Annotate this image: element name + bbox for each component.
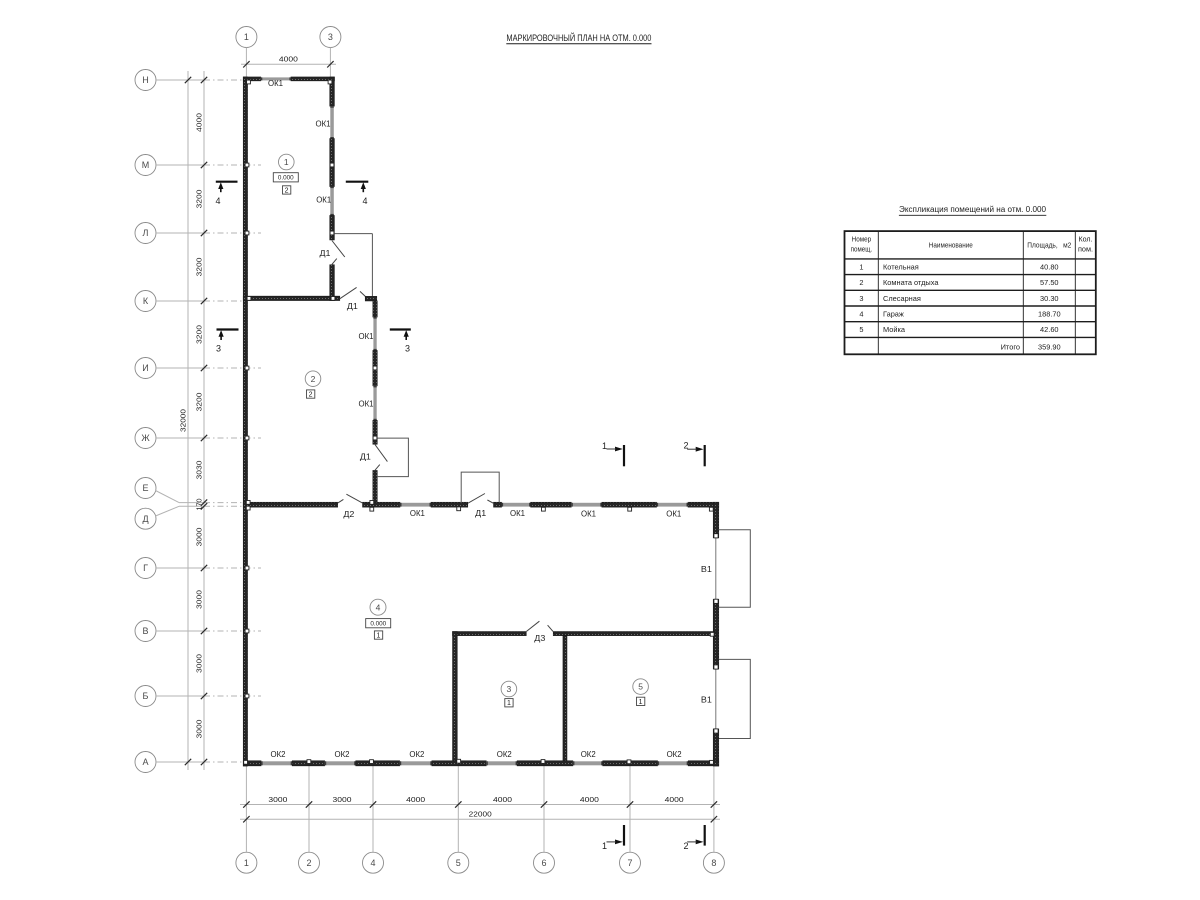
svg-text:ОК1: ОК1 xyxy=(666,510,682,519)
svg-text:ОК2: ОК2 xyxy=(335,750,351,759)
svg-text:3000: 3000 xyxy=(333,797,352,804)
svg-text:1: 1 xyxy=(639,699,643,706)
svg-text:3: 3 xyxy=(405,344,410,354)
svg-text:0.000: 0.000 xyxy=(370,621,386,628)
svg-text:ОК1: ОК1 xyxy=(359,400,375,409)
svg-text:4000: 4000 xyxy=(279,57,298,64)
svg-text:3: 3 xyxy=(328,32,333,42)
svg-text:170: 170 xyxy=(197,498,204,510)
svg-text:32000: 32000 xyxy=(181,409,188,432)
svg-text:30.30: 30.30 xyxy=(1040,294,1059,303)
svg-text:40.80: 40.80 xyxy=(1040,262,1059,271)
svg-text:3: 3 xyxy=(216,344,221,354)
svg-text:4000: 4000 xyxy=(493,797,512,804)
svg-text:Д1: Д1 xyxy=(320,249,332,258)
svg-text:4: 4 xyxy=(215,196,220,206)
svg-text:Л: Л xyxy=(143,228,149,238)
svg-text:4: 4 xyxy=(370,858,375,868)
svg-text:3000: 3000 xyxy=(197,719,204,738)
svg-text:3: 3 xyxy=(859,294,863,303)
svg-text:Номер: Номер xyxy=(852,235,872,244)
svg-text:В1: В1 xyxy=(701,565,713,574)
svg-text:7: 7 xyxy=(627,858,632,868)
svg-text:МАРКИРОВОЧНЫЙ ПЛАН НА ОТМ. 0.0: МАРКИРОВОЧНЫЙ ПЛАН НА ОТМ. 0.000 xyxy=(506,32,651,43)
svg-text:3200: 3200 xyxy=(197,257,204,276)
svg-text:4: 4 xyxy=(362,196,367,206)
svg-text:Д2: Д2 xyxy=(343,510,355,519)
svg-text:5: 5 xyxy=(638,682,643,692)
svg-text:22000: 22000 xyxy=(469,812,492,819)
svg-text:1: 1 xyxy=(244,858,249,868)
svg-text:ОК1: ОК1 xyxy=(510,509,526,518)
svg-text:Д3: Д3 xyxy=(534,634,546,643)
svg-text:ОК2: ОК2 xyxy=(667,750,683,759)
svg-text:Площадь, м2: Площадь, м2 xyxy=(1027,241,1071,250)
svg-text:3: 3 xyxy=(507,684,512,694)
svg-text:Экспликация помещений на отм.: Экспликация помещений на отм. 0.000 xyxy=(899,205,1047,214)
svg-text:Слесарная: Слесарная xyxy=(883,294,921,303)
svg-text:Кол.: Кол. xyxy=(1079,235,1093,244)
svg-text:пом.: пом. xyxy=(1078,245,1093,254)
svg-text:57.50: 57.50 xyxy=(1040,278,1059,287)
svg-text:ОК1: ОК1 xyxy=(316,120,332,129)
svg-text:К: К xyxy=(143,296,149,306)
svg-text:2: 2 xyxy=(683,841,688,851)
svg-text:ОК1: ОК1 xyxy=(268,79,284,88)
svg-text:ОК1: ОК1 xyxy=(316,196,332,205)
svg-text:Мойка: Мойка xyxy=(883,325,906,334)
svg-text:359.90: 359.90 xyxy=(1038,343,1061,352)
svg-text:1: 1 xyxy=(377,633,381,640)
svg-text:Ж: Ж xyxy=(141,433,150,443)
svg-text:Н: Н xyxy=(142,75,149,85)
svg-text:2: 2 xyxy=(683,441,688,451)
svg-text:1: 1 xyxy=(507,700,511,707)
svg-text:В1: В1 xyxy=(701,696,713,705)
svg-text:5: 5 xyxy=(859,325,863,334)
svg-text:Е: Е xyxy=(142,483,148,493)
svg-text:помещ.: помещ. xyxy=(851,245,873,254)
svg-text:ОК2: ОК2 xyxy=(581,750,597,759)
svg-text:А: А xyxy=(142,757,148,767)
svg-text:ОК2: ОК2 xyxy=(409,750,425,759)
svg-text:1: 1 xyxy=(602,841,607,851)
svg-text:М: М xyxy=(142,160,150,170)
svg-text:3200: 3200 xyxy=(197,392,204,411)
svg-text:1: 1 xyxy=(284,157,289,167)
svg-text:3000: 3000 xyxy=(197,590,204,609)
svg-text:1: 1 xyxy=(602,441,607,451)
svg-text:5: 5 xyxy=(456,858,461,868)
svg-text:3200: 3200 xyxy=(197,189,204,208)
svg-text:1: 1 xyxy=(859,262,863,271)
svg-text:Д: Д xyxy=(142,514,148,524)
svg-text:42.60: 42.60 xyxy=(1040,325,1059,334)
svg-text:Комната отдыха: Комната отдыха xyxy=(883,278,939,287)
svg-text:4000: 4000 xyxy=(580,797,599,804)
svg-text:2: 2 xyxy=(859,278,863,287)
svg-text:В: В xyxy=(142,626,148,636)
svg-text:Гараж: Гараж xyxy=(883,310,904,319)
svg-text:Д1: Д1 xyxy=(360,453,372,462)
svg-text:2: 2 xyxy=(311,374,316,384)
svg-text:Г: Г xyxy=(143,563,148,573)
svg-text:4: 4 xyxy=(376,602,381,612)
svg-text:3000: 3000 xyxy=(197,527,204,546)
svg-text:1: 1 xyxy=(244,32,249,42)
svg-text:ОК2: ОК2 xyxy=(497,750,513,759)
svg-text:3000: 3000 xyxy=(197,654,204,673)
svg-text:4000: 4000 xyxy=(197,113,204,132)
svg-text:4: 4 xyxy=(859,310,863,319)
svg-text:3200: 3200 xyxy=(197,325,204,344)
svg-text:Котельная: Котельная xyxy=(883,262,919,271)
svg-text:И: И xyxy=(142,363,148,373)
svg-text:188.70: 188.70 xyxy=(1038,310,1061,319)
svg-text:8: 8 xyxy=(711,858,716,868)
svg-text:2: 2 xyxy=(309,392,313,399)
svg-text:6: 6 xyxy=(541,858,546,868)
svg-text:2: 2 xyxy=(306,858,311,868)
svg-text:Д1: Д1 xyxy=(475,509,487,518)
svg-text:ОК1: ОК1 xyxy=(359,332,375,341)
svg-text:2: 2 xyxy=(285,188,289,195)
svg-text:Итого: Итого xyxy=(1001,343,1020,352)
svg-text:ОК1: ОК1 xyxy=(581,510,597,519)
svg-text:3030: 3030 xyxy=(197,460,204,479)
svg-text:Д1: Д1 xyxy=(347,302,359,311)
svg-text:Б: Б xyxy=(143,691,149,701)
svg-text:4000: 4000 xyxy=(665,797,684,804)
svg-text:3000: 3000 xyxy=(268,797,287,804)
svg-text:0.000: 0.000 xyxy=(278,175,294,182)
svg-text:4000: 4000 xyxy=(406,797,425,804)
svg-text:ОК1: ОК1 xyxy=(410,509,426,518)
svg-text:Наименование: Наименование xyxy=(929,241,973,250)
svg-text:ОК2: ОК2 xyxy=(271,750,287,759)
